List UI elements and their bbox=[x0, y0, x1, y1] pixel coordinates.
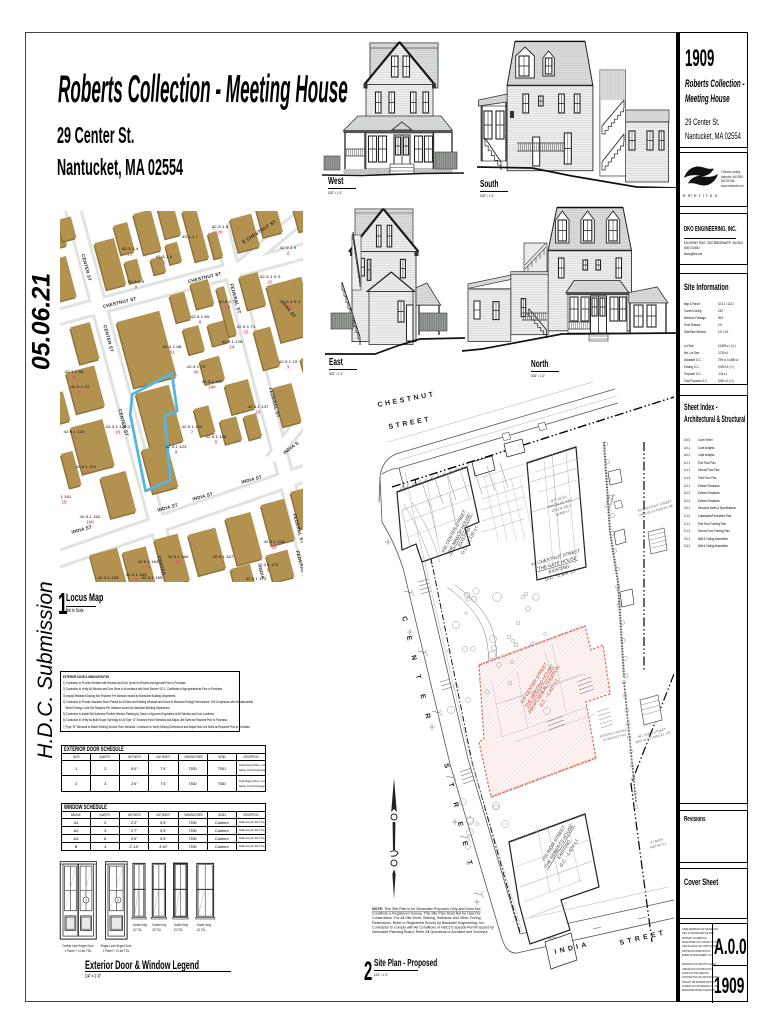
svg-text:42.3.1-125: 42.3.1-125 bbox=[202, 379, 224, 384]
svg-text:24.31': 24.31' bbox=[424, 649, 430, 657]
svg-text:Contractor to Comply with All: Contractor to Comply with All Conditions… bbox=[372, 925, 494, 929]
svg-text:42.3.1 8: 42.3.1 8 bbox=[212, 224, 230, 229]
svg-text:2/2 TDL: 2/2 TDL bbox=[152, 928, 161, 932]
svg-text:42.9.1 166: 42.9.1 166 bbox=[168, 554, 190, 559]
svg-text:NOTE: This Site Plan is for Sc: NOTE: This Site Plan is for Schematic Pu… bbox=[372, 907, 480, 911]
svg-text:E: E bbox=[418, 693, 426, 700]
svg-text:57.07': 57.07' bbox=[410, 589, 416, 597]
svg-text:1 Panel + 4 Lite TDL: 1 Panel + 4 Lite TDL bbox=[65, 949, 92, 953]
svg-text:42.9.1 120: 42.9.1 120 bbox=[64, 429, 86, 434]
svg-text:42.3.1 128: 42.3.1 128 bbox=[264, 539, 286, 544]
svg-text:20: 20 bbox=[218, 230, 223, 235]
svg-text:42.3.1 172: 42.3.1 172 bbox=[258, 562, 280, 567]
svg-text:42.9.1 126: 42.9.1 126 bbox=[206, 434, 228, 439]
svg-text:2/2 TDL: 2/2 TDL bbox=[197, 928, 206, 932]
svg-text:42.3.1 9.3: 42.3.1 9.3 bbox=[260, 274, 282, 279]
svg-text:42.3.1 137: 42.3.1 137 bbox=[248, 404, 270, 409]
svg-text:C: C bbox=[400, 616, 408, 623]
svg-text:42.1.1 66: 42.1.1 66 bbox=[65, 369, 85, 374]
svg-text:Double Hung: Double Hung bbox=[152, 923, 166, 927]
svg-text:2/2 TDL: 2/2 TDL bbox=[133, 928, 142, 932]
svg-text:T: T bbox=[414, 674, 422, 681]
svg-text:Double Hung: Double Hung bbox=[174, 923, 188, 927]
svg-text:42.9.1 70: 42.9.1 70 bbox=[187, 364, 207, 369]
svg-text:R: R bbox=[423, 713, 431, 720]
svg-text:42.9.1 57: 42.9.1 57 bbox=[71, 384, 91, 389]
svg-text:42.3.1 4: 42.3.1 4 bbox=[122, 246, 140, 251]
svg-text:Construction. For All Site Wor: Construction. For All Site Work, Staking… bbox=[372, 916, 481, 920]
svg-text:E: E bbox=[405, 635, 413, 642]
svg-text:31: 31 bbox=[170, 350, 175, 355]
svg-text:42.9.1 167: 42.9.1 167 bbox=[213, 554, 235, 559]
svg-text:21: 21 bbox=[128, 252, 133, 257]
svg-text:E: E bbox=[460, 840, 468, 847]
svg-text:1 Panel + 4 Lite TDL: 1 Panel + 4 Lite TDL bbox=[103, 949, 130, 953]
svg-text:42.3.1 165: 42.3.1 165 bbox=[142, 575, 164, 580]
svg-text:34: 34 bbox=[72, 435, 77, 440]
svg-text:3.1 161: 3.1 161 bbox=[60, 494, 72, 499]
svg-text:42.9.1 164: 42.9.1 164 bbox=[138, 559, 160, 564]
svg-text:N: N bbox=[409, 655, 417, 662]
svg-text:Restrictions, Refer to Registe: Restrictions, Refer to Registered Survey… bbox=[372, 921, 485, 925]
svg-text:25: 25 bbox=[176, 560, 181, 565]
svg-text:T: T bbox=[447, 782, 455, 789]
svg-text:140: 140 bbox=[208, 385, 216, 390]
svg-text:42.9.1 15: 42.9.1 15 bbox=[279, 359, 299, 364]
svg-text:30: 30 bbox=[134, 578, 139, 583]
svg-text:STREET: STREET bbox=[388, 416, 432, 431]
svg-text:32: 32 bbox=[84, 470, 89, 475]
svg-text:29: 29 bbox=[116, 430, 121, 435]
svg-text:16: 16 bbox=[256, 410, 261, 415]
svg-text:19: 19 bbox=[272, 545, 277, 550]
svg-text:30: 30 bbox=[72, 375, 77, 380]
svg-text:15: 15 bbox=[244, 330, 249, 335]
svg-text:Double Hung: Double Hung bbox=[197, 923, 211, 927]
svg-text:42.9.1 72: 42.9.1 72 bbox=[219, 299, 239, 304]
svg-text:42.9.1 9: 42.9.1 9 bbox=[280, 245, 298, 250]
svg-text:43.1.1 7: 43.1.1 7 bbox=[182, 234, 200, 239]
svg-text:22: 22 bbox=[268, 280, 273, 285]
svg-text:42.9.1 71: 42.9.1 71 bbox=[237, 324, 257, 329]
svg-text:STREET: STREET bbox=[619, 929, 667, 947]
svg-text:Constitute a Registered Survey: Constitute a Registered Survey. This Sit… bbox=[372, 912, 482, 916]
svg-text:S: S bbox=[442, 763, 450, 770]
svg-text:42.9.1 162: 42.9.1 162 bbox=[80, 514, 102, 519]
svg-text:36: 36 bbox=[78, 390, 83, 395]
svg-text:42.9.1 128: 42.9.1 128 bbox=[222, 339, 244, 344]
svg-text:2/2 TDL: 2/2 TDL bbox=[174, 928, 183, 932]
svg-text:36: 36 bbox=[194, 370, 199, 375]
svg-text:41.3.1 6: 41.3.1 6 bbox=[156, 254, 174, 259]
svg-text:24.31': 24.31' bbox=[480, 891, 486, 899]
svg-text:Double-Leaf Hinged Door: Double-Leaf Hinged Door bbox=[63, 944, 95, 948]
svg-text:42.3.1 159: 42.3.1 159 bbox=[98, 575, 120, 580]
svg-text:42.9.1 124: 42.9.1 124 bbox=[182, 424, 204, 429]
svg-text:Nantucket Planning Board. Refe: Nantucket Planning Board. Refer All Ques… bbox=[372, 930, 488, 934]
svg-text:10: 10 bbox=[226, 305, 231, 310]
svg-text:14: 14 bbox=[230, 345, 235, 350]
svg-text:R: R bbox=[451, 802, 459, 809]
svg-text:Double Hung: Double Hung bbox=[133, 923, 147, 927]
svg-text:42.3.1 5: 42.3.1 5 bbox=[128, 279, 146, 284]
svg-text:42.3.1 9.1: 42.3.1 9.1 bbox=[280, 299, 302, 304]
svg-text:42.3.1 122.2: 42.3.1 122.2 bbox=[105, 424, 131, 429]
svg-text:24: 24 bbox=[146, 565, 151, 570]
svg-text:42.9.1 121: 42.9.1 121 bbox=[76, 464, 98, 469]
svg-text:42.3.1 173: 42.3.1 173 bbox=[246, 576, 268, 581]
svg-text:Single-Leaf Hinged Door: Single-Leaf Hinged Door bbox=[101, 944, 133, 948]
svg-text:42.3.1 68: 42.3.1 68 bbox=[163, 344, 183, 349]
svg-text:42.3.1 123: 42.3.1 123 bbox=[166, 444, 188, 449]
svg-text:CHESTNUT: CHESTNUT bbox=[377, 391, 436, 409]
svg-text:42.9.1 69: 42.9.1 69 bbox=[191, 314, 211, 319]
svg-text:15: 15 bbox=[62, 500, 67, 505]
svg-text:100: 100 bbox=[86, 520, 94, 525]
svg-text:25: 25 bbox=[288, 305, 293, 310]
